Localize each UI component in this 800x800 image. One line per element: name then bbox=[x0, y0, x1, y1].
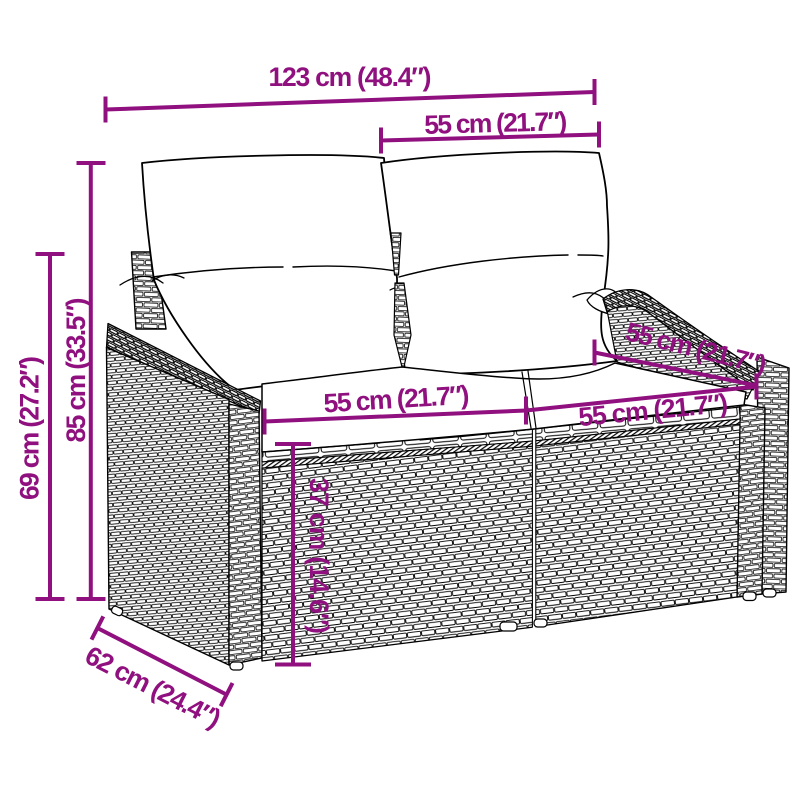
svg-text:85 cm (33.5″): 85 cm (33.5″) bbox=[61, 298, 91, 443]
svg-text:69 cm (27.2″): 69 cm (27.2″) bbox=[15, 356, 45, 500]
svg-text:55 cm (21.7″): 55 cm (21.7″) bbox=[424, 106, 568, 140]
svg-text:37 cm (14.6″): 37 cm (14.6″) bbox=[304, 478, 334, 634]
svg-text:123 cm (48.4″): 123 cm (48.4″) bbox=[269, 62, 432, 92]
